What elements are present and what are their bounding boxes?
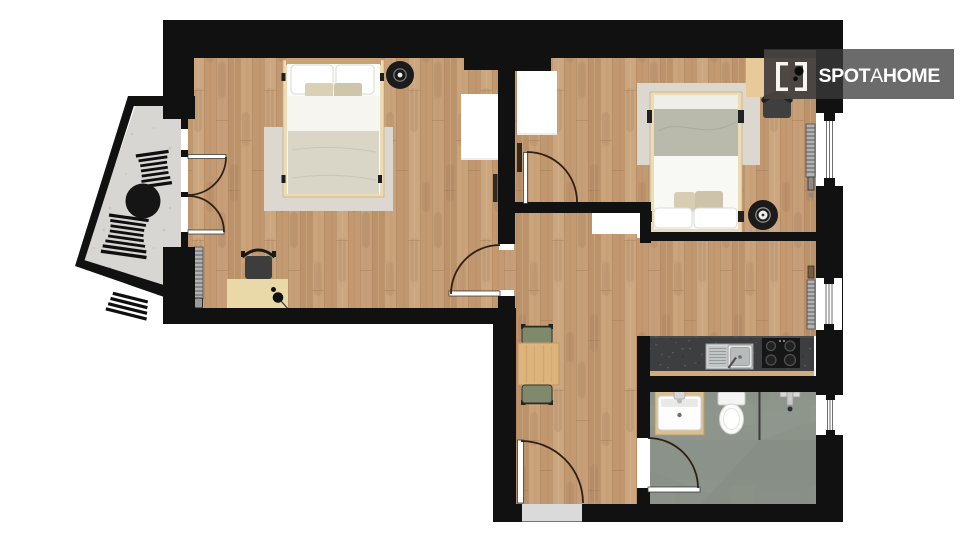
svg-text:SPOTAHOME: SPOTAHOME	[819, 65, 941, 87]
